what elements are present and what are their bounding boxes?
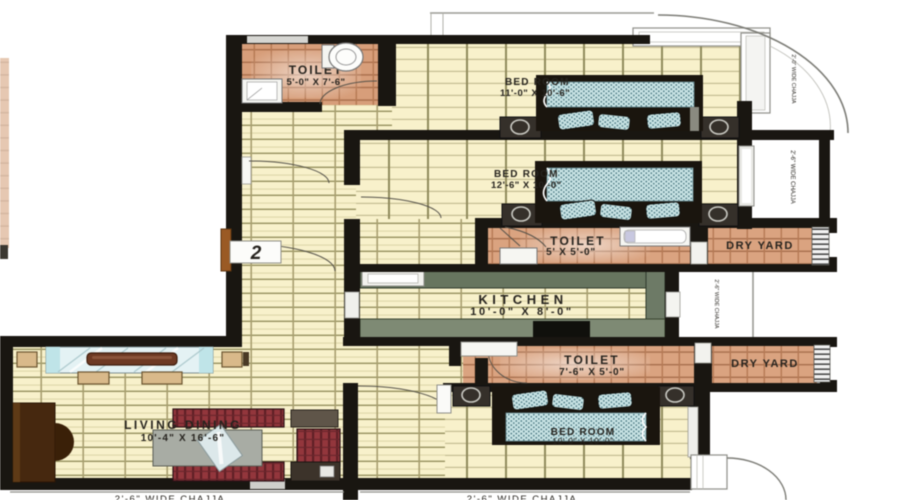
svg-text:KITCHEN: KITCHEN [478,292,567,307]
svg-text:LIVING DINING: LIVING DINING [124,418,242,432]
svg-text:BED ROOM: BED ROOM [505,77,570,88]
svg-text:2'-6" WIDE CHAJJA: 2'-6" WIDE CHAJJA [467,494,577,500]
svg-text:DRY YARD: DRY YARD [731,358,799,370]
svg-text:7'-6" X 5'-0": 7'-6" X 5'-0" [559,367,625,378]
svg-text:2'-6" WIDE CHAJJA: 2'-6" WIDE CHAJJA [789,150,795,204]
svg-text:BED ROOM: BED ROOM [494,169,559,180]
svg-text:TOILET: TOILET [564,353,620,367]
svg-text:10'-0" X 10'-0": 10'-0" X 10'-0" [552,436,613,446]
svg-text:2'-0" WIDE CHAJJA: 2'-0" WIDE CHAJJA [790,54,796,103]
svg-text:DRY YARD: DRY YARD [726,240,794,252]
svg-text:10'-4" X 16'-6": 10'-4" X 16'-6" [141,433,226,444]
svg-text:2'-6" WIDE CHAJJA: 2'-6" WIDE CHAJJA [713,279,719,328]
svg-text:2'-6" WIDE CHAJJA: 2'-6" WIDE CHAJJA [115,494,225,500]
svg-text:5'-0" X 7'-6": 5'-0" X 7'-6" [286,77,345,88]
svg-text:10'-0" X 8'-0": 10'-0" X 8'-0" [470,306,573,318]
svg-text:11'-0" X 10'-6": 11'-0" X 10'-6" [500,88,570,99]
svg-text:TOILET: TOILET [550,234,606,248]
svg-text:2: 2 [250,243,262,264]
svg-text:12'-6" X 10'-0": 12'-6" X 10'-0" [491,180,562,191]
svg-text:5' X 5'-0": 5' X 5'-0" [546,247,596,258]
